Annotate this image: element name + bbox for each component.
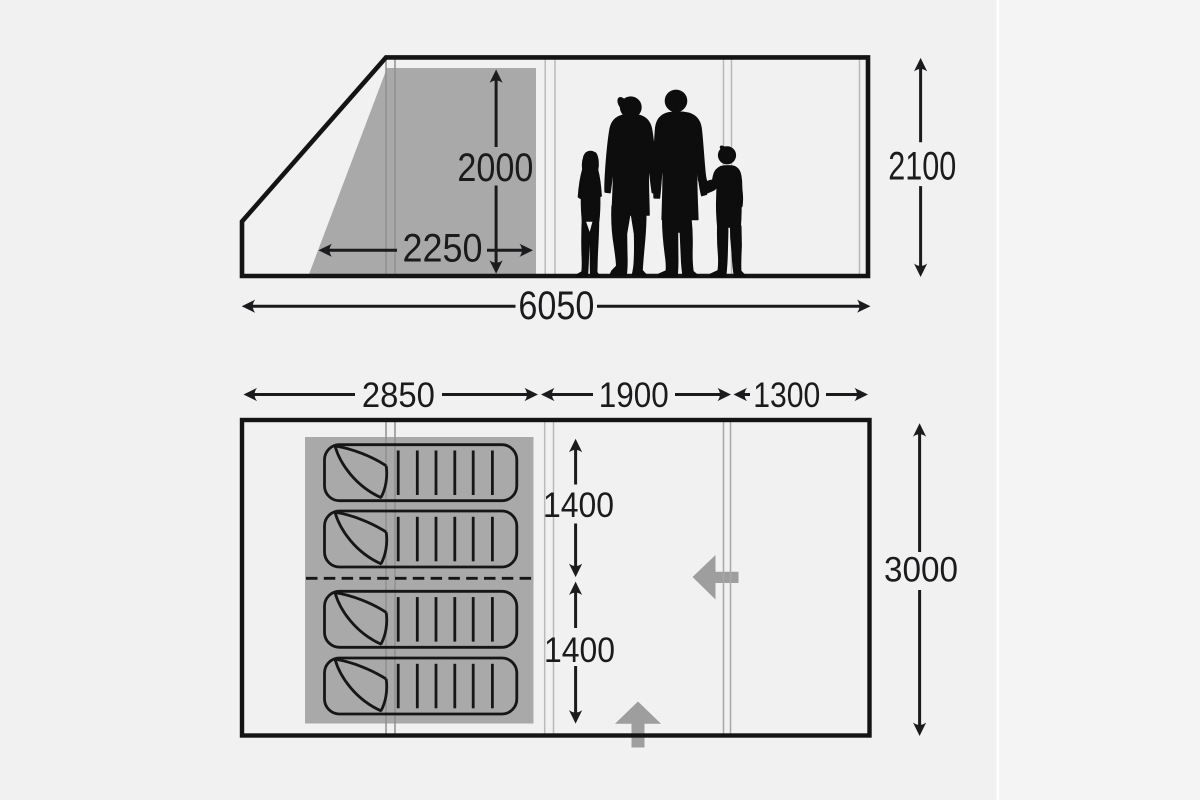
svg-text:2100: 2100: [888, 144, 956, 188]
svg-text:1400: 1400: [544, 631, 615, 670]
svg-text:6050: 6050: [518, 284, 594, 328]
svg-text:2000: 2000: [457, 146, 533, 190]
svg-text:3000: 3000: [884, 551, 958, 590]
svg-text:1400: 1400: [543, 486, 614, 525]
svg-text:2250: 2250: [403, 226, 483, 270]
svg-text:1900: 1900: [599, 376, 669, 415]
svg-text:1300: 1300: [753, 376, 820, 415]
svg-text:2850: 2850: [362, 376, 435, 415]
